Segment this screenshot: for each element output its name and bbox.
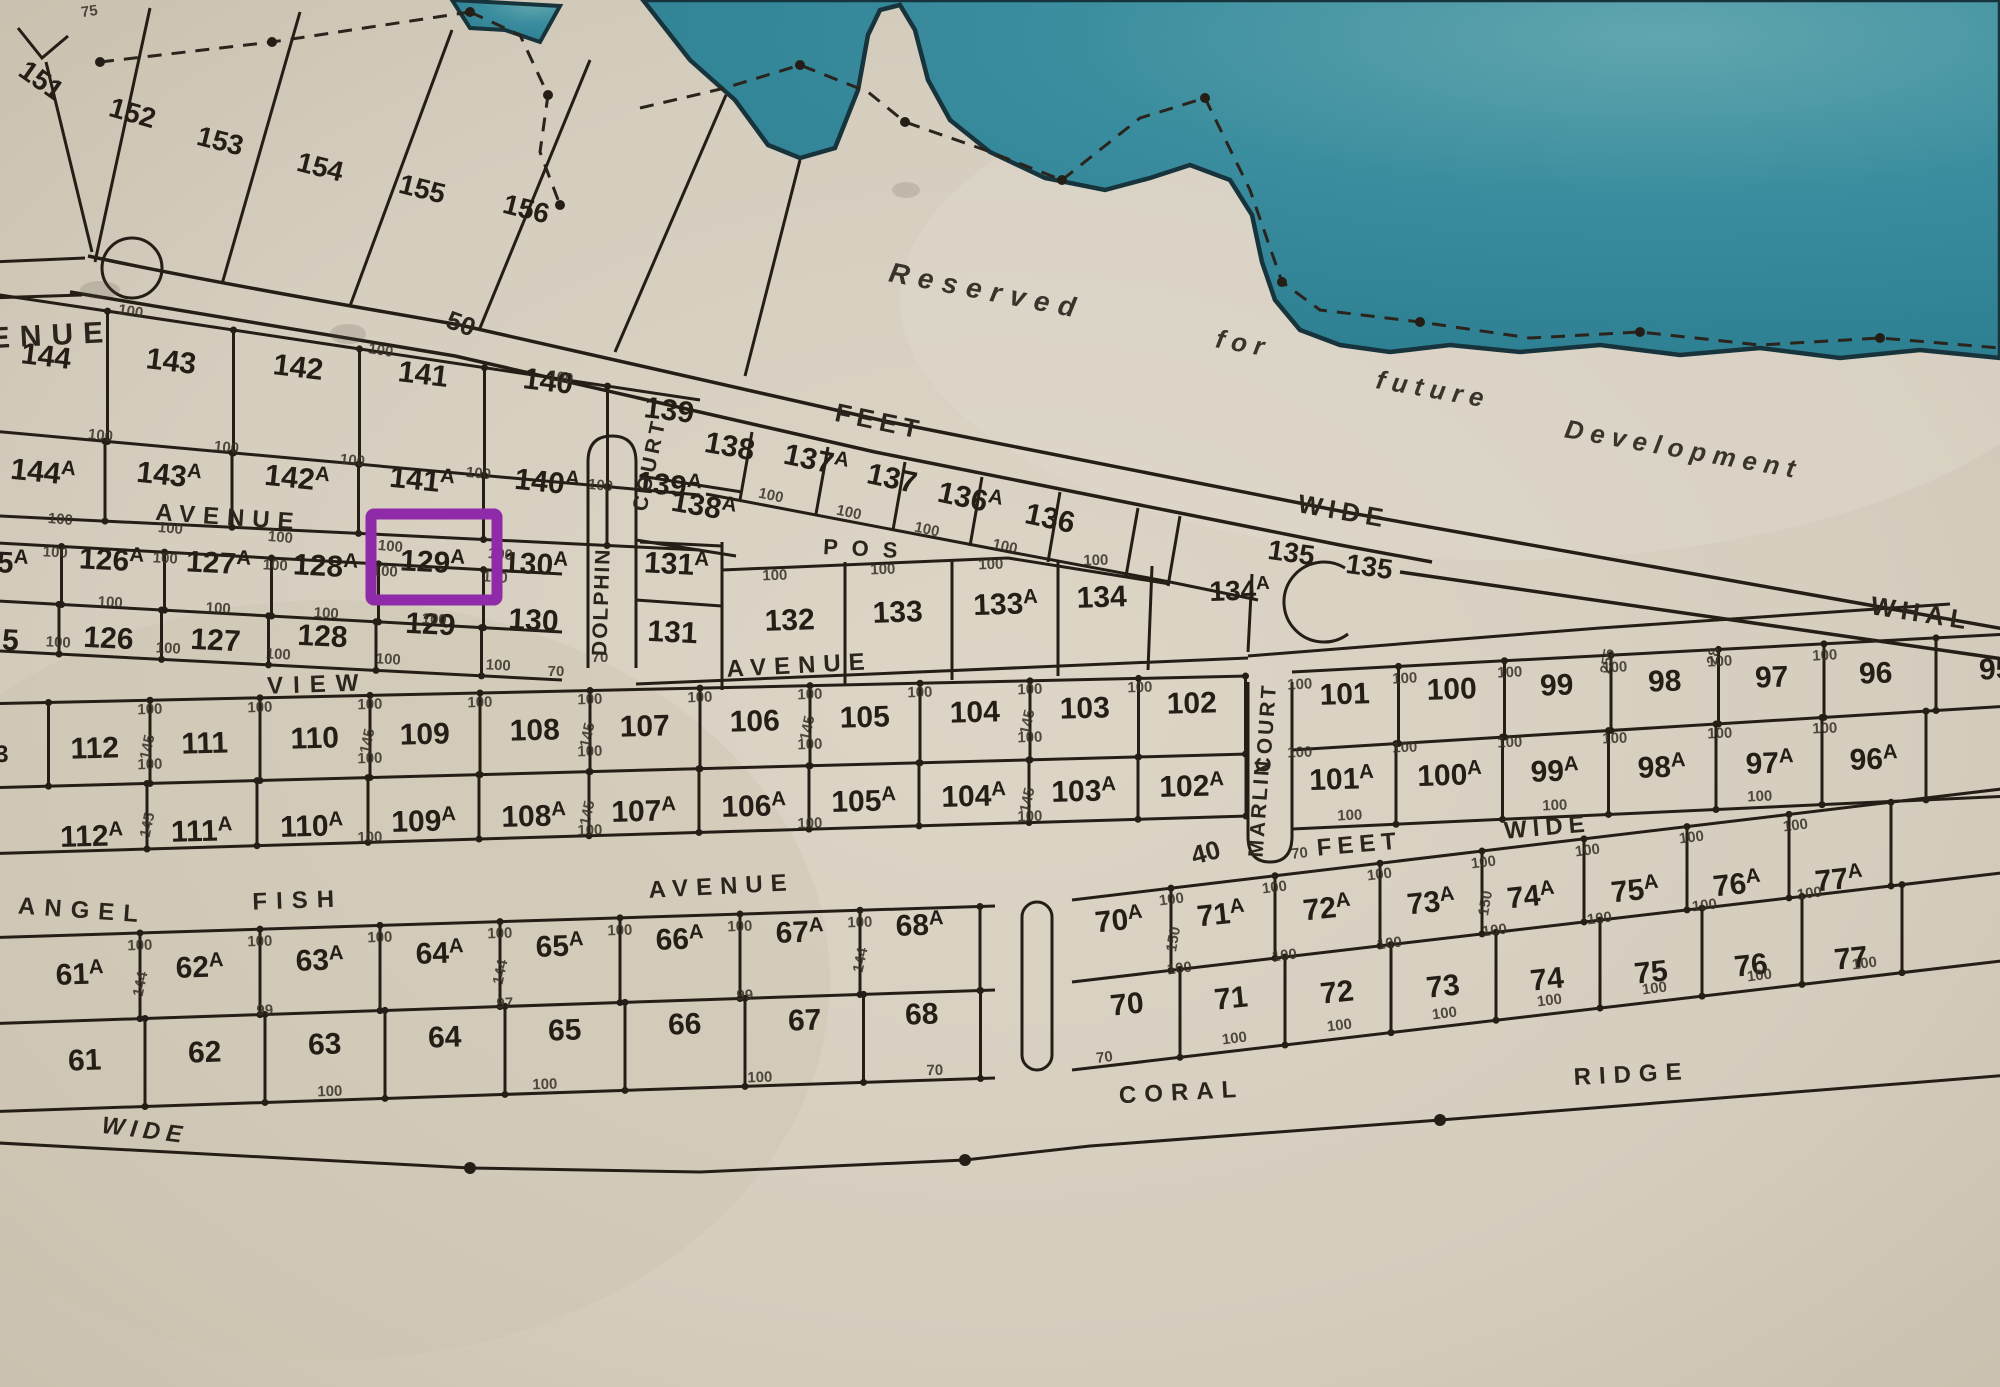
dim-100: 100 bbox=[727, 918, 753, 936]
survey-dot bbox=[56, 651, 63, 658]
survey-dot bbox=[617, 914, 624, 921]
lot-126: 126 bbox=[83, 621, 135, 657]
street-label-dolphin-court-2: DOLPHIN bbox=[588, 547, 615, 656]
dim-75: 75 bbox=[80, 2, 99, 21]
dim-100: 100 bbox=[339, 451, 366, 471]
survey-dot bbox=[137, 929, 144, 936]
survey-dot bbox=[1597, 1005, 1604, 1012]
survey-dot bbox=[1888, 882, 1895, 889]
dim-70: 70 bbox=[548, 663, 565, 680]
dim-100: 100 bbox=[1812, 646, 1838, 664]
survey-dot bbox=[1135, 753, 1142, 760]
lot-63: 63 bbox=[307, 1027, 342, 1061]
lot-71: 71 bbox=[1213, 980, 1250, 1016]
dim-100: 100 bbox=[1536, 991, 1563, 1011]
lot-143: 143 bbox=[144, 342, 198, 381]
dim-100: 100 bbox=[1796, 884, 1823, 904]
survey-dot bbox=[1819, 801, 1826, 808]
dim-100: 100 bbox=[265, 645, 291, 663]
dim-100: 100 bbox=[1017, 808, 1042, 826]
survey-dot bbox=[977, 987, 984, 994]
survey-dot bbox=[1493, 1017, 1500, 1024]
dim-100: 100 bbox=[465, 464, 492, 484]
dim-100: 100 bbox=[687, 689, 712, 707]
dim-100: 100 bbox=[155, 639, 181, 657]
survey-dot bbox=[355, 530, 362, 537]
dim-99: 99 bbox=[256, 1002, 273, 1020]
street-label-fish: FISH bbox=[252, 885, 344, 915]
plat-map-photo: { "meta": { "description": "Hand-drawn s… bbox=[0, 0, 2000, 1387]
plat-map-canvas: 144143142141140139144A143A142A141A140A13… bbox=[0, 0, 2000, 1387]
lot-103: 103 bbox=[1059, 691, 1110, 725]
dim-100: 100 bbox=[421, 610, 447, 628]
survey-dot bbox=[977, 1075, 984, 1082]
survey-dot bbox=[1605, 811, 1612, 818]
dim-100: 100 bbox=[1851, 954, 1878, 974]
survey-dot bbox=[356, 345, 363, 352]
survey-dot bbox=[1395, 663, 1402, 670]
lot-72: 72 bbox=[1319, 974, 1356, 1010]
lot-102: 102 bbox=[1166, 686, 1217, 720]
dim-100: 100 bbox=[205, 599, 231, 617]
survey-dot bbox=[142, 1015, 149, 1022]
dim-100: 100 bbox=[137, 701, 162, 719]
dim-100: 100 bbox=[532, 1076, 558, 1094]
survey-dot bbox=[1243, 751, 1250, 758]
dim-100: 100 bbox=[1366, 865, 1393, 885]
dim-100: 100 bbox=[1812, 719, 1838, 737]
survey-dot bbox=[45, 699, 52, 706]
dim-100: 100 bbox=[1158, 890, 1185, 910]
dim-100: 100 bbox=[907, 684, 932, 702]
survey-dot bbox=[158, 606, 165, 613]
survey-dot bbox=[254, 842, 261, 849]
survey-dot bbox=[1282, 1042, 1289, 1049]
survey-dot bbox=[604, 383, 611, 390]
lot-134: 134 bbox=[1076, 580, 1127, 615]
dim-100: 100 bbox=[1470, 853, 1497, 873]
dim-100: 100 bbox=[797, 815, 822, 833]
dim-100: 100 bbox=[247, 699, 272, 717]
dim-100: 100 bbox=[747, 1069, 773, 1087]
survey-dot bbox=[586, 768, 593, 775]
dim-100: 100 bbox=[1287, 675, 1313, 693]
lot-65: 65 bbox=[547, 1013, 582, 1047]
survey-dot bbox=[142, 1103, 149, 1110]
survey-dot bbox=[1684, 906, 1691, 913]
dim-70: 70 bbox=[1095, 1048, 1114, 1067]
lot-3: 3 bbox=[0, 741, 9, 768]
lot-110: 110 bbox=[290, 721, 339, 755]
survey-dot bbox=[382, 1095, 389, 1102]
dim-100: 100 bbox=[1221, 1029, 1248, 1049]
dim-100: 100 bbox=[1574, 841, 1601, 861]
lot-132: 132 bbox=[764, 603, 815, 638]
dim-100: 100 bbox=[1678, 828, 1705, 848]
dim-100: 100 bbox=[1707, 724, 1733, 742]
dim-100: 100 bbox=[357, 696, 382, 714]
survey-dot bbox=[916, 759, 923, 766]
dim-100: 100 bbox=[357, 750, 382, 768]
lot-97: 97 bbox=[1754, 660, 1789, 694]
dim-100: 100 bbox=[1271, 946, 1298, 966]
lot-131: 131 bbox=[647, 615, 699, 651]
survey-dot bbox=[1388, 1029, 1395, 1036]
survey-dot bbox=[373, 618, 380, 625]
survey-dot bbox=[45, 783, 52, 790]
lot-127: 127 bbox=[190, 623, 242, 659]
dim-100: 100 bbox=[577, 822, 602, 840]
dim-100: 100 bbox=[213, 438, 240, 458]
lot-105: 105 bbox=[839, 700, 890, 734]
survey-dot bbox=[1026, 756, 1033, 763]
lot-70: 70 bbox=[1109, 986, 1146, 1022]
dim-100: 100 bbox=[367, 929, 393, 947]
dim-100: 100 bbox=[1691, 896, 1718, 916]
dim-100: 100 bbox=[1261, 878, 1288, 898]
lot-96: 96 bbox=[1858, 656, 1893, 690]
dim-100: 100 bbox=[377, 537, 403, 556]
survey-dot bbox=[1242, 673, 1249, 680]
lot-135-east: 135 bbox=[1344, 548, 1395, 585]
survey-dot bbox=[262, 1099, 269, 1106]
survey-dot bbox=[144, 780, 151, 787]
dim-100: 100 bbox=[1326, 1016, 1353, 1036]
lot-61: 61 bbox=[67, 1043, 102, 1077]
survey-dot bbox=[254, 777, 261, 784]
dim-70: 70 bbox=[1290, 844, 1308, 863]
survey-dot bbox=[857, 907, 864, 914]
survey-dot bbox=[476, 836, 483, 843]
survey-dot bbox=[696, 829, 703, 836]
survey-dot bbox=[860, 991, 867, 998]
dim-100: 100 bbox=[97, 593, 123, 611]
survey-dot bbox=[502, 1091, 509, 1098]
dim-100: 100 bbox=[47, 510, 73, 529]
dim-100: 100 bbox=[313, 604, 339, 622]
dim-100: 100 bbox=[1602, 729, 1628, 747]
survey-dot bbox=[1888, 799, 1895, 806]
street-label-avenue-end: ENUE bbox=[0, 316, 114, 355]
survey-dot bbox=[481, 364, 488, 371]
survey-dot bbox=[1713, 806, 1720, 813]
dim-100: 100 bbox=[1287, 743, 1313, 761]
lot-101: 101 bbox=[1319, 677, 1370, 712]
lot-107: 107 bbox=[619, 709, 670, 743]
lot-112: 112 bbox=[70, 731, 119, 765]
lot-73: 73 bbox=[1425, 968, 1462, 1004]
dim-100: 100 bbox=[797, 736, 822, 754]
lot-100: 100 bbox=[1426, 672, 1477, 707]
lot-111: 111 bbox=[181, 726, 229, 760]
survey-dot bbox=[478, 624, 485, 631]
lot-67: 67 bbox=[787, 1003, 822, 1037]
dim-100: 100 bbox=[357, 829, 382, 847]
dim-100: 100 bbox=[485, 656, 511, 674]
lot-106: 106 bbox=[729, 704, 780, 738]
dim-100: 100 bbox=[45, 633, 71, 651]
dim-100: 100 bbox=[847, 914, 873, 932]
survey-dot bbox=[1177, 1054, 1184, 1061]
dim-100: 100 bbox=[375, 650, 401, 668]
street-label-view: VIEW bbox=[267, 669, 369, 700]
dim-100: 100 bbox=[1641, 979, 1668, 999]
lot-95: 95 bbox=[1978, 652, 2000, 686]
dim-97: 97 bbox=[496, 995, 513, 1013]
survey-dot bbox=[1923, 708, 1930, 715]
survey-dot bbox=[144, 845, 151, 852]
dim-100: 100 bbox=[247, 933, 273, 951]
lot-108: 108 bbox=[509, 713, 560, 747]
lot-66: 66 bbox=[667, 1007, 702, 1041]
dim-28: 28 bbox=[1704, 647, 1724, 666]
survey-dot bbox=[622, 999, 629, 1006]
survey-dot bbox=[158, 656, 165, 663]
lot-5: 5 bbox=[1, 624, 19, 658]
survey-dot bbox=[860, 1079, 867, 1086]
dim-70: 70 bbox=[926, 1062, 943, 1080]
dim-100: 100 bbox=[1392, 669, 1418, 687]
survey-dot bbox=[382, 1007, 389, 1014]
pos-text: P O S bbox=[823, 534, 902, 563]
dim-100: 100 bbox=[42, 543, 68, 561]
survey-dot bbox=[1933, 707, 1940, 714]
dim-100: 100 bbox=[152, 549, 178, 567]
lot-142: 142 bbox=[271, 348, 325, 387]
dim-100: 100 bbox=[87, 426, 114, 446]
lot-133: 133 bbox=[872, 595, 923, 630]
survey-dot bbox=[56, 601, 63, 608]
lot-141: 141 bbox=[396, 355, 450, 394]
dim-100: 100 bbox=[587, 476, 614, 496]
dim-100: 100 bbox=[1083, 552, 1109, 570]
survey-dot bbox=[1135, 816, 1142, 823]
dim-100: 100 bbox=[262, 556, 288, 574]
survey-dot bbox=[622, 1087, 629, 1094]
lot-128: 128 bbox=[297, 619, 349, 655]
lot-104: 104 bbox=[949, 695, 1000, 729]
survey-dot bbox=[104, 308, 111, 315]
survey-dot bbox=[373, 667, 380, 674]
dim-100: 100 bbox=[1127, 679, 1152, 697]
dim-100: 100 bbox=[797, 686, 822, 704]
survey-dot bbox=[365, 774, 372, 781]
dim-100: 100 bbox=[1481, 921, 1508, 941]
dim-100: 100 bbox=[978, 556, 1004, 574]
lot-62: 62 bbox=[187, 1035, 222, 1069]
dim-100: 100 bbox=[1497, 733, 1523, 751]
dim-100: 100 bbox=[1497, 663, 1523, 681]
dim-100: 100 bbox=[1392, 738, 1418, 756]
lot-99: 99 bbox=[1539, 668, 1574, 702]
lot-109: 109 bbox=[399, 717, 450, 751]
survey-dot bbox=[1699, 993, 1706, 1000]
dim-100: 100 bbox=[577, 691, 602, 709]
survey-dot bbox=[1899, 881, 1906, 888]
dim-100: 100 bbox=[1747, 787, 1773, 805]
survey-dot bbox=[1933, 634, 1940, 641]
survey-dot bbox=[977, 903, 984, 910]
lot-130: 130 bbox=[508, 603, 560, 639]
dim-100: 100 bbox=[137, 756, 162, 774]
dim-100: 100 bbox=[577, 743, 602, 761]
survey-dot bbox=[377, 922, 384, 929]
lot-135-west: 135 bbox=[1266, 534, 1317, 571]
dim-100: 100 bbox=[317, 1083, 343, 1101]
survey-dot bbox=[737, 911, 744, 918]
survey-dot bbox=[1799, 981, 1806, 988]
lot-68: 68 bbox=[904, 997, 939, 1031]
survey-dot bbox=[696, 765, 703, 772]
survey-dot bbox=[1786, 894, 1793, 901]
survey-dot bbox=[230, 327, 237, 334]
survey-dot bbox=[265, 612, 272, 619]
dim-100: 100 bbox=[1017, 681, 1042, 699]
lot-64: 64 bbox=[427, 1020, 462, 1054]
survey-dot bbox=[806, 762, 813, 769]
survey-dot bbox=[102, 518, 109, 525]
survey-dot bbox=[257, 926, 264, 933]
dim-100: 100 bbox=[1017, 729, 1042, 747]
dim-100: 100 bbox=[1376, 934, 1403, 954]
dim-100: 100 bbox=[1166, 959, 1193, 979]
dim-100: 100 bbox=[1746, 966, 1773, 986]
dim-100: 100 bbox=[1431, 1004, 1458, 1024]
dim-100: 100 bbox=[607, 922, 633, 940]
survey-dot bbox=[476, 771, 483, 778]
survey-dot bbox=[916, 822, 923, 829]
dim-100: 100 bbox=[1586, 909, 1613, 929]
dim-100: 100 bbox=[870, 561, 896, 579]
survey-dot bbox=[480, 536, 487, 543]
dim-100: 100 bbox=[1782, 816, 1809, 836]
survey-dot bbox=[478, 672, 485, 679]
dim-100: 100 bbox=[1337, 806, 1363, 824]
dim-100: 100 bbox=[127, 937, 153, 955]
survey-dot bbox=[1899, 969, 1906, 976]
dim-100: 100 bbox=[467, 694, 492, 712]
dim-100: 100 bbox=[487, 925, 513, 943]
lot-98: 98 bbox=[1647, 664, 1682, 698]
dim-100: 100 bbox=[762, 567, 788, 585]
dim-99: 99 bbox=[736, 987, 753, 1005]
